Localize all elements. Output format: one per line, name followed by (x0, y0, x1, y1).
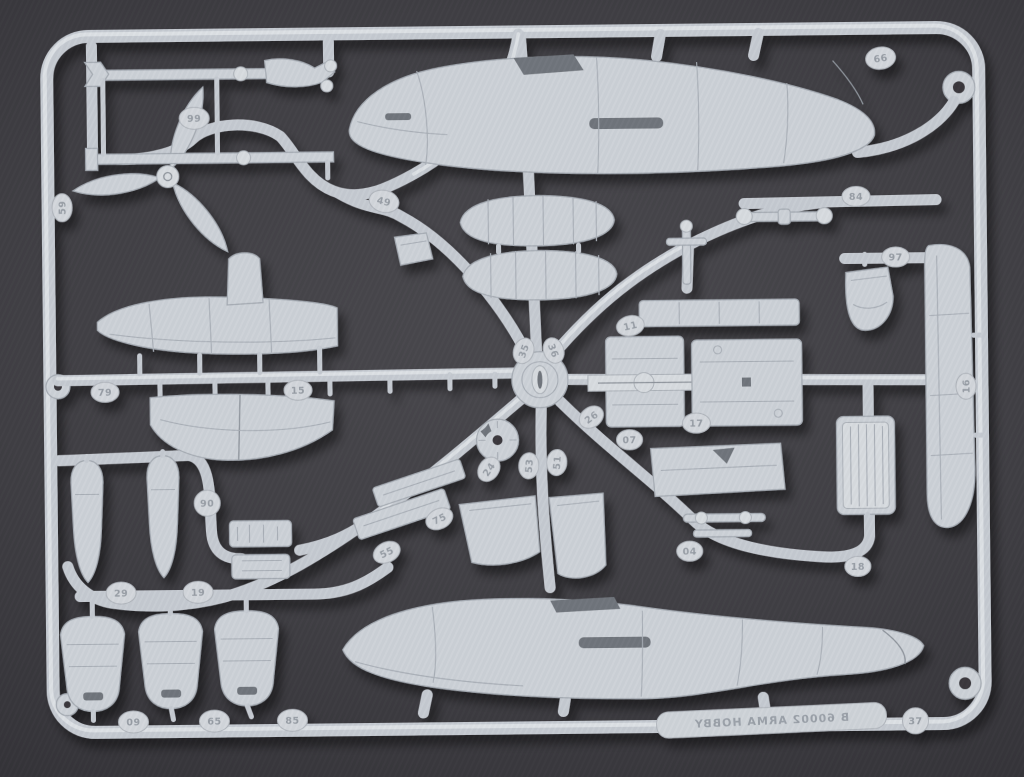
part-number-tag: 18 (845, 556, 871, 576)
svg-text:29: 29 (114, 589, 128, 600)
part-number-tag: 85 (277, 709, 307, 731)
equipment-box-parts (229, 520, 292, 579)
part-number-tag: 07 (616, 430, 642, 450)
part-number-tag: 65 (199, 710, 229, 732)
seat-part (845, 254, 893, 330)
landing-gear-struts (85, 58, 338, 180)
part-number-tag: 90 (194, 490, 220, 516)
wheel-hub-part (476, 419, 518, 461)
part-number-tag: 55 (370, 537, 404, 567)
photo-model-kit-sprue: 99 59 49 66 84 97 11 35 36 79 15 16 26 1… (0, 0, 1024, 777)
svg-text:90: 90 (200, 499, 214, 510)
tail-fin-line (833, 60, 863, 104)
svg-text:17: 17 (689, 418, 703, 429)
tailplane-panels (459, 493, 606, 579)
part-number-tag: 15 (284, 380, 312, 400)
svg-text:18: 18 (851, 562, 865, 573)
brand-plate: B 60002 ARMA HOBBY (656, 702, 887, 738)
svg-text:37: 37 (908, 716, 922, 727)
svg-text:79: 79 (98, 388, 112, 399)
svg-text:07: 07 (622, 435, 636, 446)
part-number-tag: 26 (575, 401, 608, 432)
svg-text:97: 97 (888, 252, 902, 263)
wing-root-slot (589, 117, 663, 129)
svg-text:99: 99 (187, 114, 201, 125)
radiator-part (836, 416, 895, 537)
svg-text:51: 51 (552, 455, 564, 470)
part-number-tag: 37 (902, 708, 928, 734)
sprue-illustration: 99 59 49 66 84 97 11 35 36 79 15 16 26 1… (0, 0, 1024, 777)
cockpit-frame-part (587, 336, 700, 427)
svg-text:84: 84 (849, 192, 863, 203)
part-number-tag: 17 (682, 413, 710, 433)
part-number-tag: 16 (956, 373, 976, 399)
svg-text:19: 19 (191, 588, 205, 599)
cowling-parts (60, 594, 279, 720)
part-number-tag: 04 (677, 541, 703, 561)
part-number-tag: 79 (91, 382, 119, 402)
part-number-tag: 99 (179, 107, 209, 129)
part-number-tag: 19 (183, 581, 213, 603)
svg-text:65: 65 (207, 717, 221, 728)
fin-part (227, 253, 264, 305)
fuselage-half-bottom (342, 594, 924, 702)
svg-text:53: 53 (524, 458, 536, 473)
small-canopy-part (394, 233, 432, 265)
part-number-tag: 29 (106, 582, 136, 604)
svg-text:66: 66 (873, 53, 889, 66)
svg-text:09: 09 (126, 717, 140, 728)
svg-text:85: 85 (285, 716, 299, 727)
cockpit-sidewall-panel (639, 299, 799, 327)
drop-tank-parts (71, 451, 180, 582)
part-number-tag: 84 (842, 186, 870, 206)
part-number-tag: 59 (52, 194, 72, 222)
elevator-parts (460, 195, 617, 301)
axle-part (736, 208, 832, 225)
part-number-tag: 66 (864, 45, 897, 71)
svg-text:04: 04 (683, 547, 697, 558)
fuselage-half-top (348, 51, 875, 176)
svg-text:15: 15 (291, 386, 305, 397)
svg-text:16: 16 (961, 379, 972, 393)
flap-panels (352, 459, 466, 540)
cockpit-floor-part (692, 339, 803, 426)
part-number-tag: 09 (118, 711, 148, 733)
svg-text:59: 59 (58, 201, 69, 215)
wing-fillet-panel (651, 443, 786, 496)
part-number-tag: 97 (882, 247, 910, 267)
wing-root-slot (579, 637, 651, 649)
part-number-tag: 51 (546, 449, 568, 476)
